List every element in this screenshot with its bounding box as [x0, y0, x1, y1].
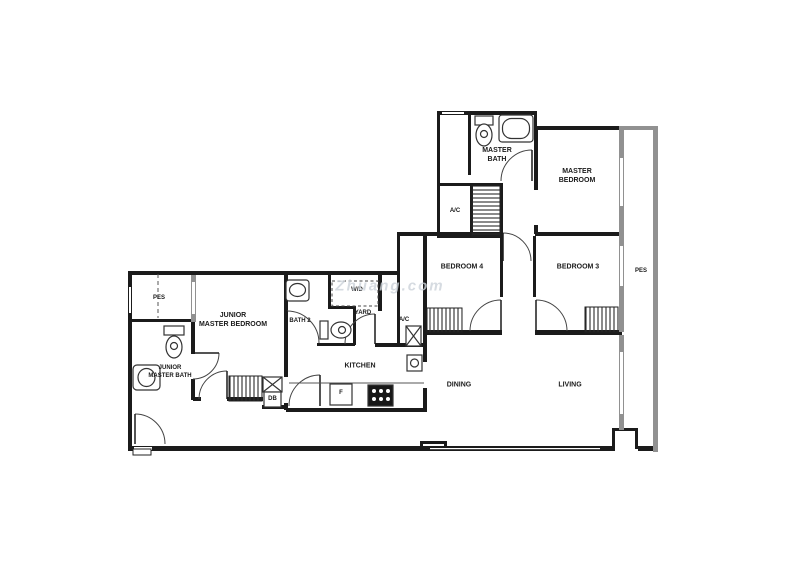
bedroom3-wardrobe	[585, 307, 618, 332]
entry-door	[135, 414, 165, 444]
room-label-bedroom-4: BEDROOM 4	[441, 262, 483, 271]
watermark: Zhuang.com	[335, 278, 444, 295]
room-label-master-bedroom: MASTER BEDROOM	[559, 167, 596, 185]
toilet-icon	[320, 321, 351, 339]
bath2-door	[287, 311, 319, 343]
bedroom4-door	[470, 300, 501, 331]
room-label-kitchen: KITCHEN	[344, 361, 375, 370]
room-label-bath-2: BATH 2	[289, 318, 310, 326]
kitchen-sink-icon	[407, 355, 422, 371]
stove-icon	[368, 385, 393, 406]
bedroom4-wardrobe	[427, 308, 462, 332]
master-suite-door	[503, 233, 531, 261]
label-db: DB	[268, 396, 277, 404]
toilet-icon	[475, 116, 493, 146]
master-wardrobe	[472, 186, 500, 236]
kitchen-door	[289, 375, 320, 406]
room-label-yard: YARD	[355, 310, 371, 318]
sink-icon	[286, 280, 309, 301]
entry-step	[133, 449, 151, 455]
junior-bedroom-door	[199, 371, 227, 399]
room-label-dining: DINING	[447, 380, 472, 389]
bathtub-icon	[499, 115, 533, 142]
room-label-bedroom-3: BEDROOM 3	[557, 262, 599, 271]
room-label-junior-master-bath: JUNIOR MASTER BATH	[148, 365, 191, 381]
crossed-box	[263, 377, 282, 392]
floor-plan: MASTER BATH MASTER BEDROOM A/C BEDROOM 4…	[0, 0, 800, 566]
label-fridge: F	[339, 390, 343, 398]
room-label-master-bath: MASTER BATH	[482, 146, 512, 164]
toilet-icon	[164, 326, 184, 358]
room-label-pes-right: PES	[635, 268, 647, 276]
junior-bath-door	[193, 353, 219, 379]
fixtures	[133, 115, 533, 407]
junior-wardrobe	[229, 376, 262, 401]
bedroom3-door	[536, 300, 567, 331]
room-label-living: LIVING	[558, 380, 581, 389]
room-label-ac-mid: A/C	[399, 317, 409, 325]
room-label-ac-upper: A/C	[450, 208, 460, 216]
room-label-junior-master-bedroom: JUNIOR MASTER BEDROOM	[199, 311, 267, 329]
ac-unit-icon	[406, 326, 421, 346]
room-label-pes-left: PES	[153, 295, 165, 303]
